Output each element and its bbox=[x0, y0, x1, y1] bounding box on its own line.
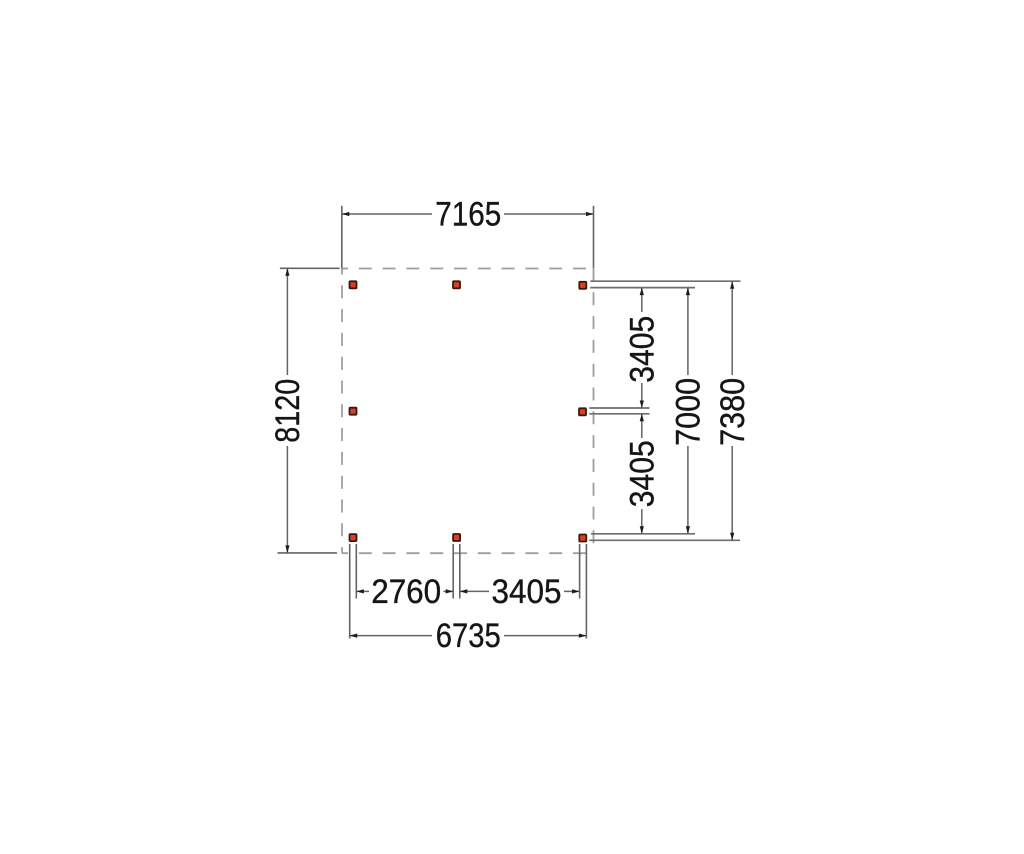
svg-text:7165: 7165 bbox=[435, 196, 501, 234]
svg-text:3405: 3405 bbox=[623, 440, 661, 507]
svg-text:6735: 6735 bbox=[436, 617, 501, 655]
svg-text:2760: 2760 bbox=[371, 573, 441, 611]
svg-text:3405: 3405 bbox=[623, 316, 661, 383]
svg-text:7380: 7380 bbox=[714, 378, 752, 446]
svg-text:8120: 8120 bbox=[269, 379, 307, 443]
svg-text:7000: 7000 bbox=[670, 378, 708, 446]
svg-text:3405: 3405 bbox=[492, 573, 562, 611]
